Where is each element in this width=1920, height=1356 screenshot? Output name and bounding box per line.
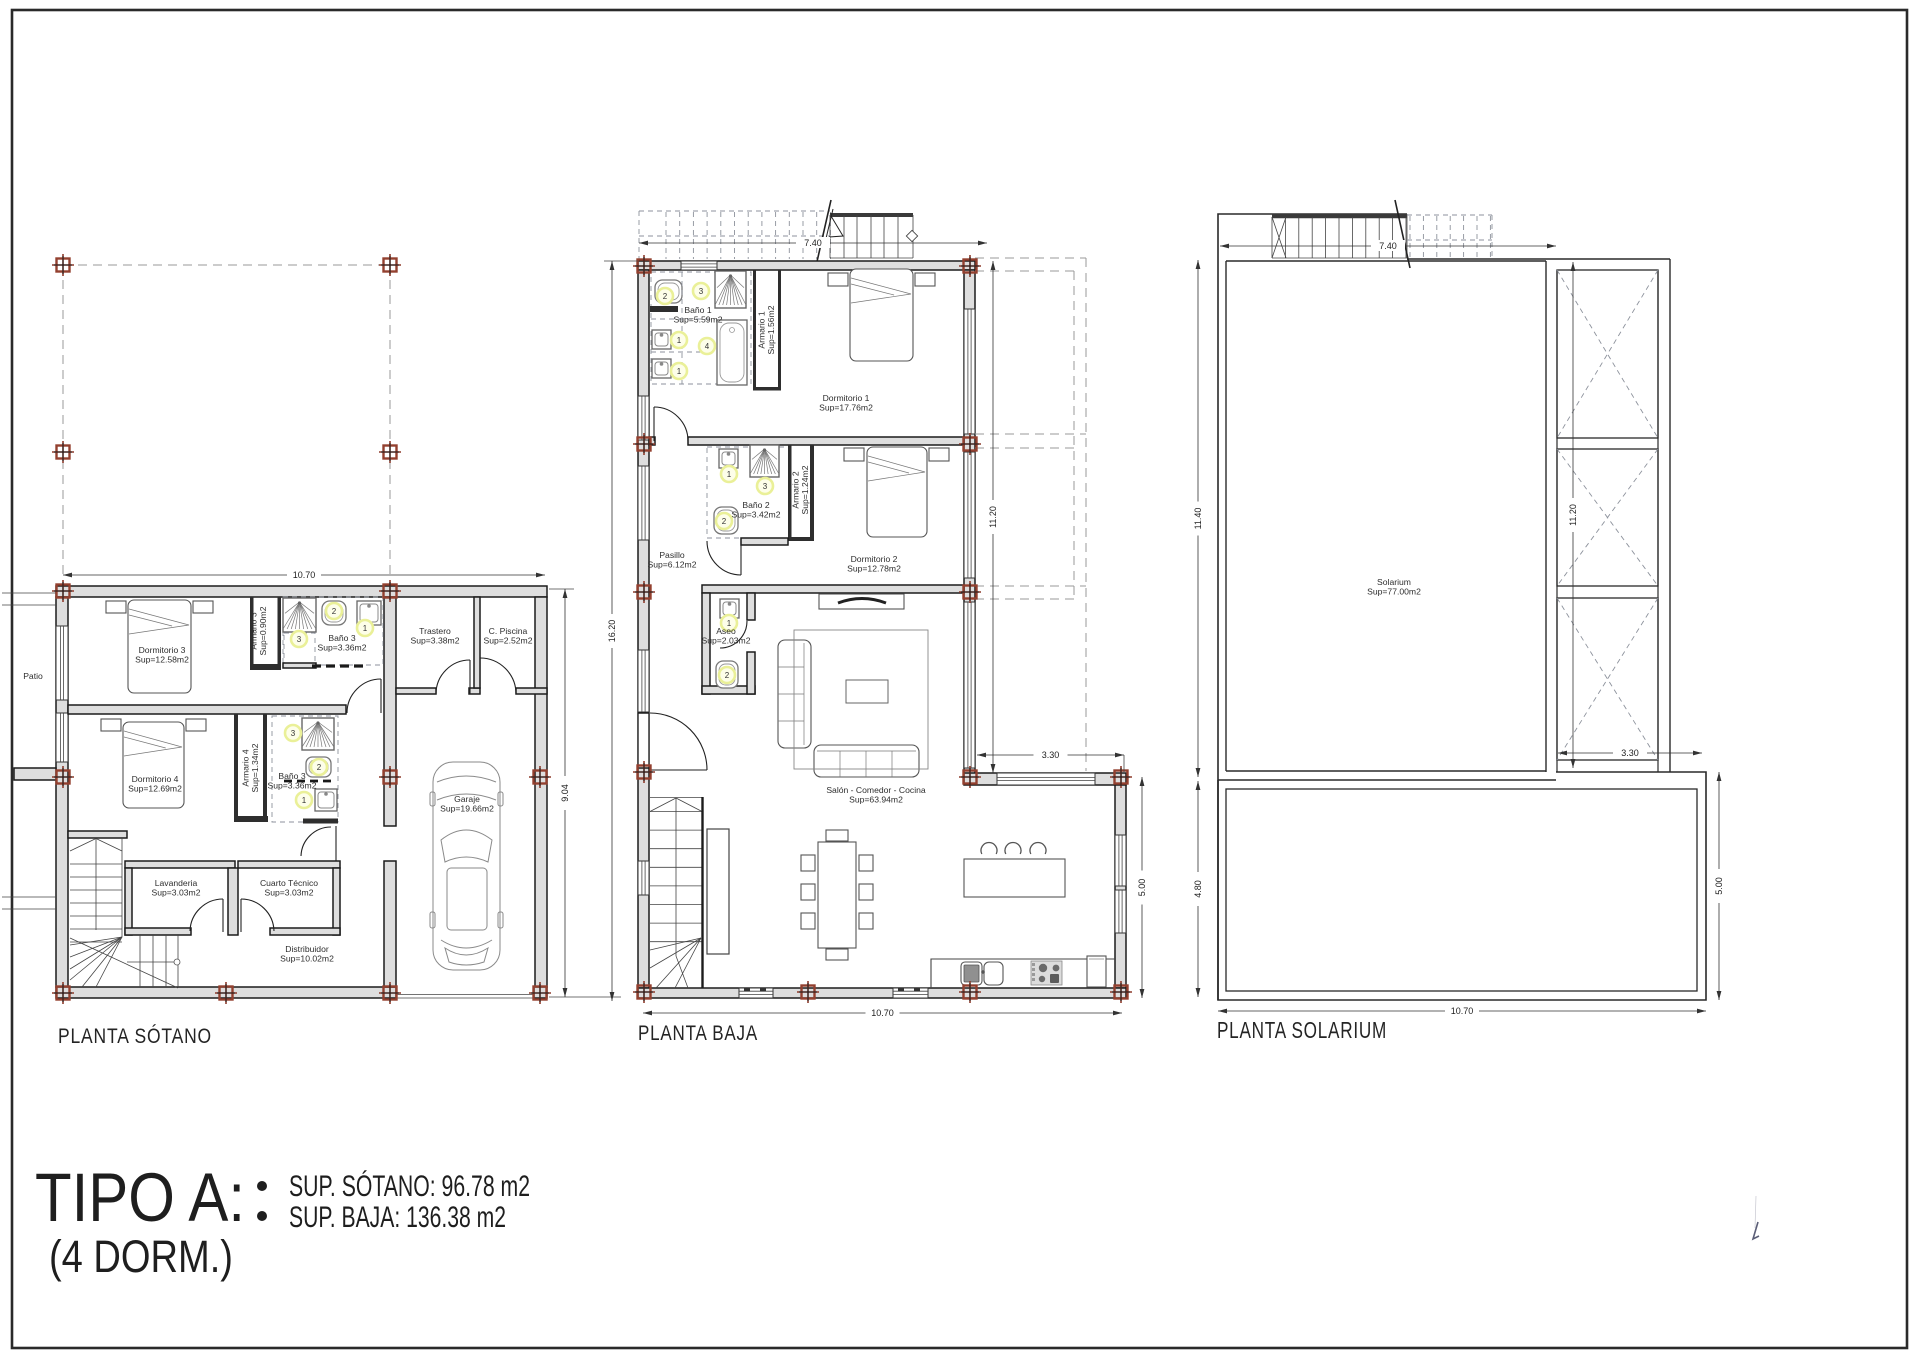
svg-text:Sup=10.02m2: Sup=10.02m2 [280, 954, 334, 964]
svg-text:10.70: 10.70 [871, 1008, 894, 1018]
svg-text:11.40: 11.40 [1193, 508, 1203, 530]
svg-text:Sup=12.58m2: Sup=12.58m2 [135, 655, 189, 665]
svg-text:TIPO A:: TIPO A: [35, 1159, 245, 1236]
svg-text:Cuarto Técnico: Cuarto Técnico [260, 878, 318, 888]
svg-text:Dormitorio 3: Dormitorio 3 [139, 645, 186, 655]
svg-text:Sup=6.12m2: Sup=6.12m2 [648, 560, 697, 570]
svg-text:5.00: 5.00 [1714, 877, 1724, 895]
svg-text:PLANTA BAJA: PLANTA BAJA [638, 1022, 758, 1045]
svg-text:Armario 2: Armario 2 [791, 471, 801, 508]
svg-text:1: 1 [302, 796, 307, 805]
svg-text:4.80: 4.80 [1193, 880, 1203, 898]
svg-text:Sup=1.56m2: Sup=1.56m2 [766, 305, 776, 354]
svg-text:Sup=77.00m2: Sup=77.00m2 [1367, 587, 1421, 597]
svg-text:16.20: 16.20 [607, 620, 617, 643]
svg-text:Patio: Patio [23, 671, 43, 681]
svg-text:Armario 1: Armario 1 [757, 311, 767, 348]
svg-text:Sup=0.90m2: Sup=0.90m2 [258, 606, 268, 655]
svg-text:Sup=12.78m2: Sup=12.78m2 [847, 564, 901, 574]
svg-text:3: 3 [297, 635, 302, 644]
svg-text:2: 2 [722, 517, 727, 526]
svg-text:3.30: 3.30 [1042, 750, 1060, 760]
svg-text:PLANTA SOLARIUM: PLANTA SOLARIUM [1217, 1017, 1387, 1043]
svg-text:3: 3 [763, 482, 768, 491]
svg-text:3: 3 [291, 729, 296, 738]
svg-text:Dormitorio 2: Dormitorio 2 [851, 554, 898, 564]
svg-text:Sup=3.36m2: Sup=3.36m2 [268, 781, 317, 791]
svg-text:5.00: 5.00 [1137, 879, 1147, 897]
svg-text:Trastero: Trastero [419, 626, 451, 636]
svg-text:11.20: 11.20 [1568, 504, 1578, 526]
svg-text:1: 1 [677, 367, 682, 376]
svg-text:Sup=5.59m2: Sup=5.59m2 [674, 315, 723, 325]
svg-text:Sup=1.24m2: Sup=1.24m2 [800, 465, 810, 514]
svg-text:Sup=12.69m2: Sup=12.69m2 [128, 784, 182, 794]
svg-text:7.40: 7.40 [1379, 241, 1397, 251]
svg-text:Lavanderia: Lavanderia [155, 878, 198, 888]
svg-text:Sup=3.38m2: Sup=3.38m2 [411, 636, 460, 646]
svg-text:Baño 3: Baño 3 [278, 771, 305, 781]
svg-text:Solarium: Solarium [1377, 577, 1411, 587]
svg-text:Distribuidor: Distribuidor [285, 944, 329, 954]
svg-text:Salón - Comedor - Cocina: Salón - Comedor - Cocina [826, 785, 926, 795]
svg-text:Armario 3: Armario 3 [249, 612, 259, 649]
svg-text:7.40: 7.40 [804, 238, 822, 248]
svg-text:11.20: 11.20 [988, 506, 998, 528]
svg-text:Garaje: Garaje [454, 794, 480, 804]
svg-text:SUP. SÓTANO: 96.78 m2: SUP. SÓTANO: 96.78 m2 [289, 1170, 530, 1203]
svg-text:Sup=3.36m2: Sup=3.36m2 [318, 643, 367, 653]
svg-text:Pasillo: Pasillo [659, 550, 685, 560]
svg-text:Baño 2: Baño 2 [742, 500, 769, 510]
svg-text:Dormitorio 4: Dormitorio 4 [132, 774, 179, 784]
svg-text:4: 4 [705, 342, 710, 351]
svg-text:Sup=3.42m2: Sup=3.42m2 [732, 510, 781, 520]
svg-text:Dormitorio 1: Dormitorio 1 [823, 393, 870, 403]
svg-text:Sup=1.34m2: Sup=1.34m2 [250, 743, 260, 792]
svg-text:Sup=17.76m2: Sup=17.76m2 [819, 403, 873, 413]
svg-text:3: 3 [699, 287, 704, 296]
svg-text:2: 2 [663, 292, 668, 301]
svg-text:PLANTA SÓTANO: PLANTA SÓTANO [58, 1025, 212, 1048]
svg-text:10.70: 10.70 [293, 570, 316, 580]
svg-text:Sup=2.52m2: Sup=2.52m2 [484, 636, 533, 646]
svg-text:SUP. BAJA: 136.38 m2: SUP. BAJA: 136.38 m2 [289, 1201, 506, 1234]
svg-text:Sup=2.03m2: Sup=2.03m2 [702, 636, 751, 646]
svg-text:Sup=3.03m2: Sup=3.03m2 [265, 888, 314, 898]
svg-text:Baño 1: Baño 1 [684, 305, 711, 315]
svg-text:10.70: 10.70 [1451, 1006, 1474, 1016]
svg-text:Aseo: Aseo [716, 626, 736, 636]
svg-text:(4 DORM.): (4 DORM.) [49, 1231, 233, 1282]
svg-text:Sup=19.66m2: Sup=19.66m2 [440, 804, 494, 814]
svg-text:C. Piscina: C. Piscina [489, 626, 528, 636]
svg-text:1: 1 [363, 624, 368, 633]
svg-text:3.30: 3.30 [1621, 748, 1639, 758]
svg-text:1: 1 [727, 470, 732, 479]
svg-text:9.04: 9.04 [560, 784, 570, 802]
svg-text:Sup=3.03m2: Sup=3.03m2 [152, 888, 201, 898]
svg-text:1: 1 [677, 336, 682, 345]
svg-text:2: 2 [725, 671, 730, 680]
svg-text:Armario 4: Armario 4 [241, 749, 251, 786]
svg-text:Sup=63.94m2: Sup=63.94m2 [849, 795, 903, 805]
svg-text:2: 2 [317, 763, 322, 772]
svg-text:Baño 3: Baño 3 [328, 633, 355, 643]
svg-text:2: 2 [332, 607, 337, 616]
